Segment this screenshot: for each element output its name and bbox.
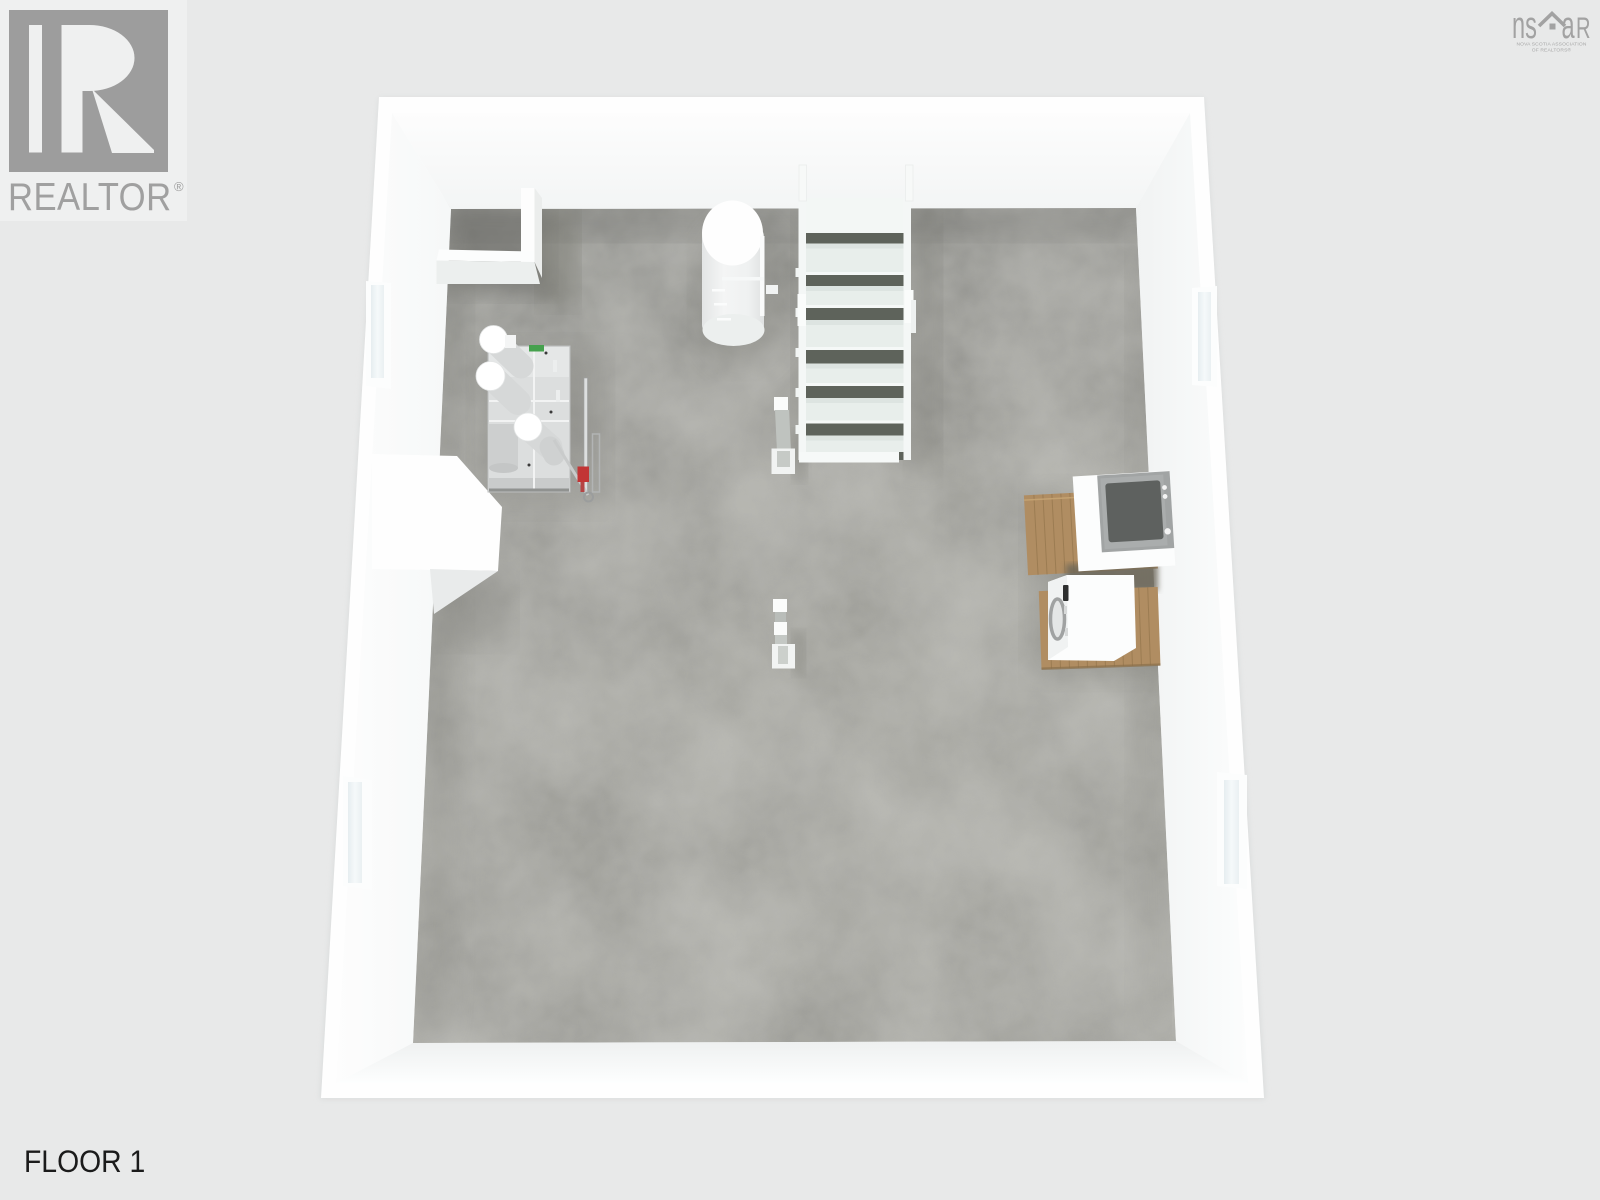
svg-text:®: ® <box>174 179 184 194</box>
svg-text:NOVA SCOTIA ASSOCIATION: NOVA SCOTIA ASSOCIATION <box>1516 42 1586 48</box>
svg-text:FLOOR 1: FLOOR 1 <box>24 1145 145 1180</box>
svg-text:R: R <box>1576 12 1590 45</box>
svg-text:REALTOR: REALTOR <box>8 175 172 218</box>
svg-text:OF REALTORS®: OF REALTORS® <box>1532 46 1572 53</box>
svg-text:ns: ns <box>1512 3 1537 46</box>
